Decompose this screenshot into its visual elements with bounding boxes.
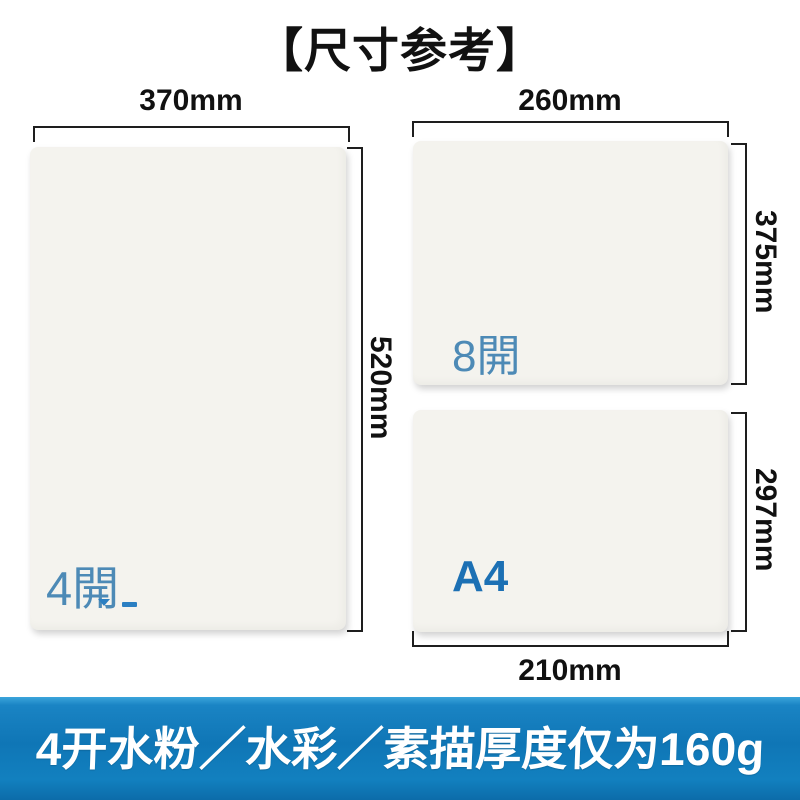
dim-bracket-width-4kai <box>33 126 350 142</box>
dim-label-width-8kai: 260mm <box>412 84 728 118</box>
stray-mark-dash-icon <box>122 602 137 607</box>
dim-label-height-a4: 297mm <box>748 412 782 628</box>
dim-label-height-4kai: 520mm <box>363 147 397 628</box>
page-title: 【尺寸参考】 <box>0 12 800 81</box>
dim-bracket-height-8kai <box>731 143 747 385</box>
stray-mark-triangle-icon <box>98 599 110 606</box>
sheet-label-8kai: 8開 <box>452 320 520 384</box>
dim-bracket-height-a4 <box>731 412 747 632</box>
banner-text: 4开水粉／水彩／素描厚度仅为160g <box>35 713 766 779</box>
dim-bracket-width-a4 <box>412 631 729 647</box>
dim-bracket-height-4kai <box>347 147 363 632</box>
dim-bracket-width-8kai <box>412 121 729 137</box>
dim-label-width-a4: 210mm <box>412 654 728 688</box>
size-reference-infographic: 【尺寸参考】 370mm 520mm 4開 260mm 375mm 8開 297… <box>0 0 800 800</box>
dim-label-height-8kai: 375mm <box>748 143 782 381</box>
sheet-label-4kai: 4開 <box>46 550 119 619</box>
product-spec-banner: 4开水粉／水彩／素描厚度仅为160g <box>0 697 800 800</box>
dim-label-width-4kai: 370mm <box>33 84 349 118</box>
sheet-label-a4: A4 <box>452 552 508 602</box>
